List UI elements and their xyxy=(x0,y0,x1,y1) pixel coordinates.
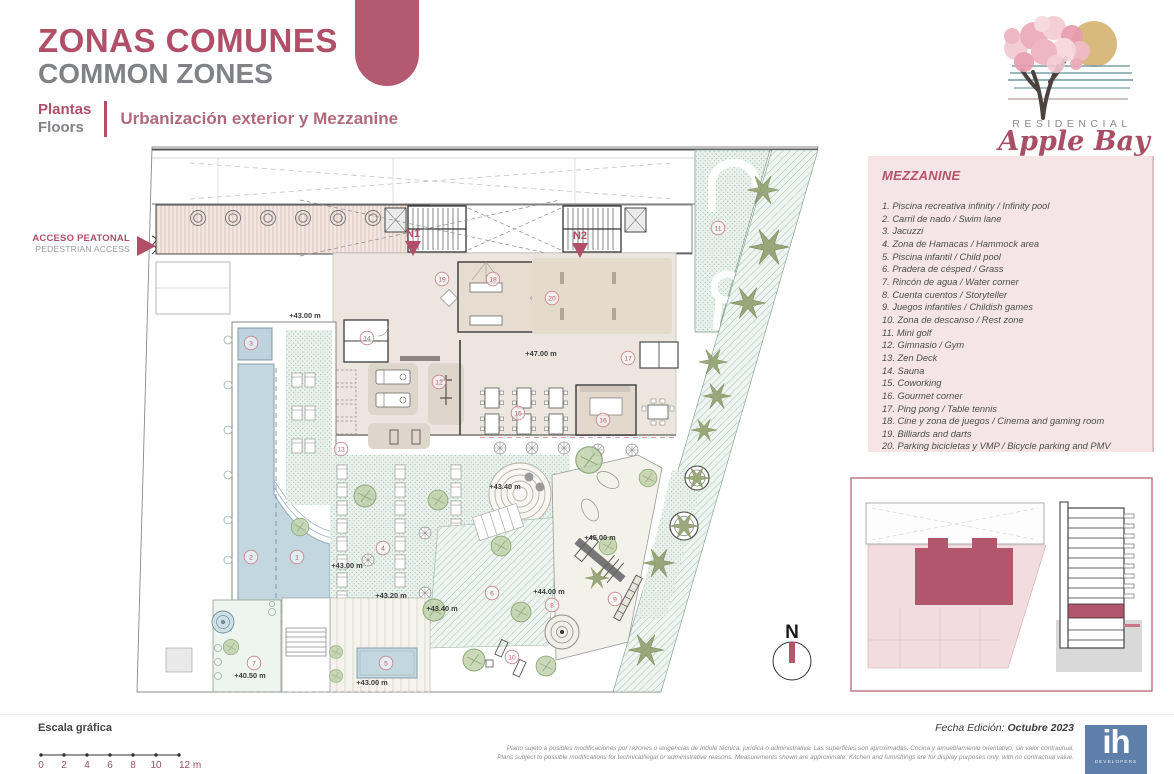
scale-tick-label: 4 xyxy=(84,760,90,771)
edition-value: Octubre 2023 xyxy=(1007,722,1074,734)
plan-marker-number: 7 xyxy=(252,660,256,667)
storyteller-circle xyxy=(545,615,579,649)
divider xyxy=(104,101,107,137)
plan-marker-number: 19 xyxy=(438,276,446,283)
sheet-subtitle: Urbanización exterior y Mezzanine xyxy=(120,109,398,129)
edition-date: Fecha Edición: Octubre 2023 xyxy=(935,722,1074,734)
developer-logo: ih DEVELOPERS xyxy=(1085,725,1147,774)
stair-label-n1: N1 xyxy=(406,228,420,240)
plan-marker-number: 5 xyxy=(384,660,388,667)
disclaimer-en: Plans subject to possible modifications … xyxy=(449,753,1074,762)
legend-item: 12. Gimnasio / Gym xyxy=(882,339,1138,352)
scale-tick-label: 2 xyxy=(61,760,67,771)
legend-list: 1. Piscina recreativa infinity / Infinit… xyxy=(882,200,1138,453)
access-label-en: PEDESTRIAN ACCESS xyxy=(18,244,130,255)
legend-item: 15. Coworking xyxy=(882,377,1138,390)
plan-marker-number: 20 xyxy=(548,295,556,302)
title-spanish: ZONAS COMUNES xyxy=(38,24,338,57)
elevation-label: +43.20 m xyxy=(375,591,407,600)
developer-logo-sub: DEVELOPERS xyxy=(1085,759,1147,764)
legend-item: 10. Zona de descanso / Rest zone xyxy=(882,314,1138,327)
legend-title: MEZZANINE xyxy=(882,168,1138,183)
plan-marker-number: 16 xyxy=(599,417,607,424)
brand-name: Apple Bay xyxy=(995,126,1152,156)
plan-marker-number: 8 xyxy=(550,602,554,609)
plan-marker-number: 17 xyxy=(624,355,632,362)
plan-marker-number: 12 xyxy=(435,379,443,386)
legend-item: 14. Sauna xyxy=(882,365,1138,378)
scale-title: Escala gráfica xyxy=(38,722,112,734)
legend-item: 7. Rincón de agua / Water corner xyxy=(882,276,1138,289)
plan-marker-number: 9 xyxy=(613,596,617,603)
disclaimer: Plano sujeto a posibles modificaciones p… xyxy=(449,744,1074,762)
legend-item: 4. Zona de Hamacas / Hammock area xyxy=(882,238,1138,251)
plan-marker-number: 4 xyxy=(381,545,385,552)
edition-label: Fecha Edición: xyxy=(935,722,1004,734)
north-arrow: N xyxy=(773,622,811,680)
elevation-label: +40.50 m xyxy=(234,671,266,680)
plan-marker-number: 14 xyxy=(363,335,371,342)
scale-tick-label: 6 xyxy=(107,760,113,771)
disclaimer-es: Plano sujeto a posibles modificaciones p… xyxy=(449,744,1074,753)
mezzanine-legend: MEZZANINE 1. Piscina recreativa infinity… xyxy=(868,156,1154,452)
scale-tick-label: 8 xyxy=(130,760,136,771)
floors-row: Plantas Floors Urbanización exterior y M… xyxy=(38,101,398,137)
elevation-label: +43.00 m xyxy=(356,678,388,687)
legend-item: 13. Zen Deck xyxy=(882,352,1138,365)
elevation-label: +43.40 m xyxy=(426,604,458,613)
apple-bay-logo: RESIDENCIAL Apple Bay xyxy=(986,6,1158,156)
scale-tick-label: 12 m xyxy=(179,760,201,771)
header-pill-decoration xyxy=(355,0,419,86)
plan-marker-number: 2 xyxy=(249,554,253,561)
legend-item: 19. Billiards and darts xyxy=(882,428,1138,441)
key-plan-section xyxy=(1056,502,1142,672)
legend-item: 20. Parking bicicletas y VMP / Bicycle p… xyxy=(882,440,1138,453)
legend-item: 17. Ping pong / Table tennis xyxy=(882,403,1138,416)
graphic-scale: 024681012 m xyxy=(38,748,208,772)
tree-icon xyxy=(1004,16,1090,118)
legend-item: 11. Mini golf xyxy=(882,327,1138,340)
developer-logo-text: ih xyxy=(1085,725,1147,759)
legend-item: 18. Cine y zona de juegos / Cinema and g… xyxy=(882,415,1138,428)
elevation-label: +43.00 m xyxy=(289,311,321,320)
elevation-label: +45.00 m xyxy=(584,533,616,542)
legend-item: 9. Juegos infantiles / Childish games xyxy=(882,301,1138,314)
floors-label-en: Floors xyxy=(38,119,91,137)
footer-divider xyxy=(0,714,1174,715)
access-label-es: ACCESO PEATONAL xyxy=(18,233,130,244)
floors-label-es: Plantas xyxy=(38,101,91,119)
plan-marker-number: 18 xyxy=(489,276,497,283)
scale-labels: 024681012 m xyxy=(38,760,201,771)
legend-item: 16. Gourmet corner xyxy=(882,390,1138,403)
plan-marker-number: 1 xyxy=(295,554,299,561)
plan-marker-number: 13 xyxy=(337,446,345,453)
scale-tick-label: 0 xyxy=(38,760,44,771)
legend-item: 1. Piscina recreativa infinity / Infinit… xyxy=(882,200,1138,213)
floors-labels: Plantas Floors xyxy=(38,101,91,137)
legend-item: 6. Pradera de césped / Grass xyxy=(882,263,1138,276)
plan-marker-number: 15 xyxy=(514,410,522,417)
plan-marker-number: 11 xyxy=(714,225,721,232)
legend-item: 3. Jacuzzi xyxy=(882,225,1138,238)
elevation-label: +47.00 m xyxy=(525,349,557,358)
pedestrian-access-label: ACCESO PEATONAL PEDESTRIAN ACCESS xyxy=(18,233,130,255)
legend-item: 8. Cuenta cuentos / Storyteller xyxy=(882,289,1138,302)
plan-marker-number: 3 xyxy=(249,340,253,347)
plan-marker-number: 6 xyxy=(490,590,494,597)
north-label: N xyxy=(785,622,799,643)
legend-item: 2. Carril de nado / Swim lane xyxy=(882,213,1138,226)
plan-sheet: ZONAS COMUNES COMMON ZONES Plantas Floor… xyxy=(0,0,1174,774)
elevation-label: +43.40 m xyxy=(489,482,521,491)
scale-tick-label: 10 xyxy=(150,760,162,771)
stair-label-n2: N2 xyxy=(573,230,587,242)
elevation-label: +43.00 m xyxy=(331,561,363,570)
key-plan-inset: N xyxy=(748,473,1160,703)
page-title: ZONAS COMUNES COMMON ZONES xyxy=(38,24,338,88)
legend-item: 5. Piscina infantil / Child pool xyxy=(882,251,1138,264)
plan-marker-number: 10 xyxy=(508,654,516,661)
elevation-label: +44.00 m xyxy=(533,587,565,596)
title-english: COMMON ZONES xyxy=(38,60,338,88)
